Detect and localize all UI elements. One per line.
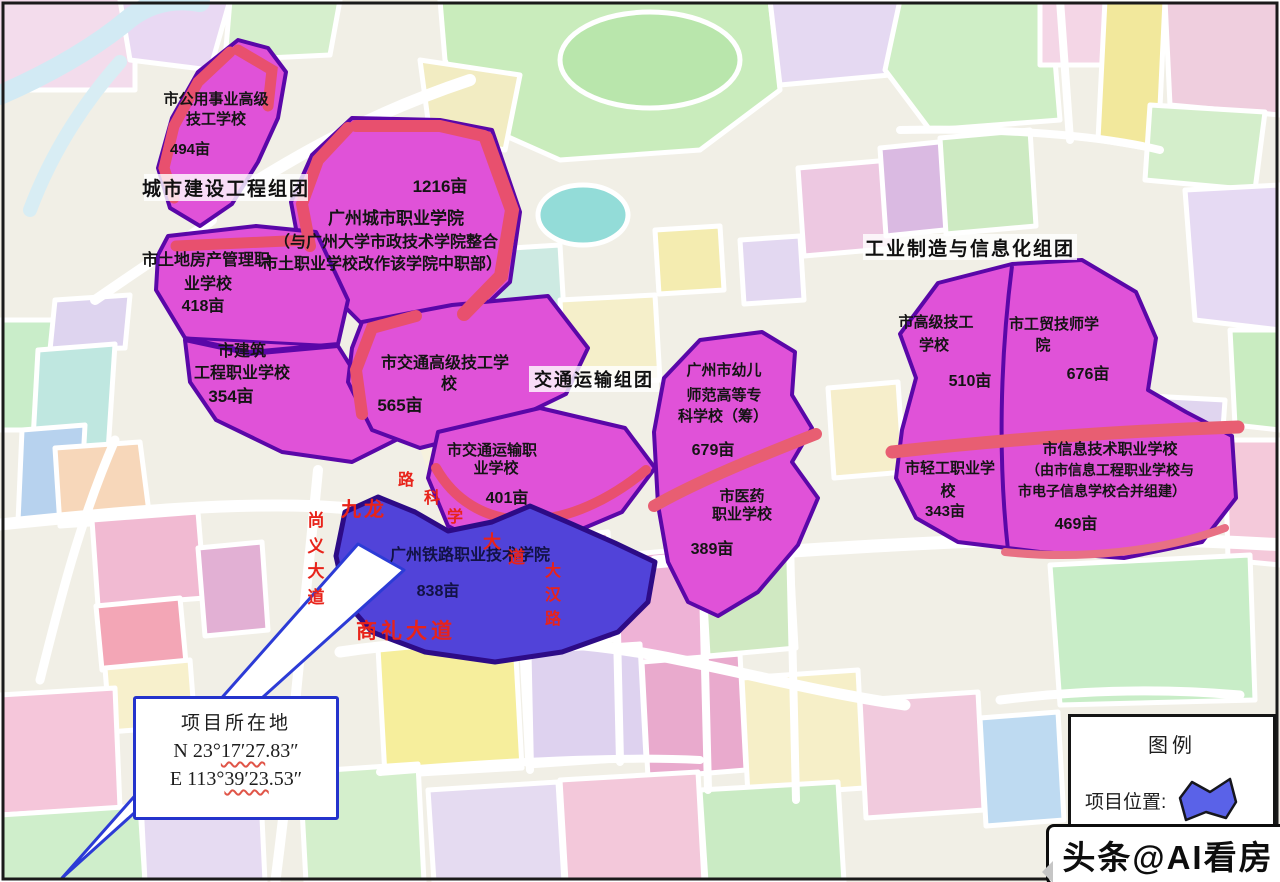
road-label-left-vertical: 尚 义 大 道 [308,508,325,610]
parcel-area: 401亩 [486,490,529,508]
parcel-area: 676亩 [1067,366,1110,384]
parcel-area: 565亩 [377,397,422,416]
parcel-note: 市土职业学校改作该学院中职部） [262,256,502,274]
callout-title: 项目所在地 [136,708,336,735]
road-label-jiulong: 九龙 [341,493,387,522]
parcel-label: 市高级技工 [898,315,973,332]
legend-title: 图例 [1071,729,1273,758]
parcel-label: 市公用事业高级 [163,92,268,109]
parcel-area: 679亩 [692,442,735,460]
parcel-note: 市电子信息学校合并组建） [1018,484,1186,499]
parcel-area: 1216亩 [413,178,468,197]
road-label-right-vertical: 大 汉 路 [545,560,561,632]
parcel-label: 市医药 [719,489,764,506]
parcel-label: 市建筑 [218,343,266,361]
parcel-area-project: 838亩 [417,583,460,601]
parcel-label: 市交通高级技工学 [381,355,509,373]
parcel-label: 师范高等专 [686,388,761,405]
parcel-area: 494亩 [170,142,210,159]
legend-item-label: 项目位置: [1085,787,1166,814]
parcel-label: 广州城市职业学院 [328,210,464,229]
parcel-label: 科学校（筹） [678,409,768,426]
road-label-diagonal-char: 科 [424,484,440,508]
parcel-label: 学校 [919,338,949,355]
parcel-label: 院 [1035,338,1050,355]
parcel-label: 校 [441,376,457,394]
project-location-callout: 项目所在地 N 23°17′27.83″ E 113°39′23.53″ [133,696,339,820]
parcel-label: 业学校 [184,276,232,294]
callout-longitude: E 113°39′23.53″ [136,768,336,791]
watermark-text: 头条@AI看房 [1062,831,1273,879]
parcel-label: 市轻工职业学 [905,461,995,478]
parcel-area: 343亩 [925,504,965,521]
road-label-diagonal-char: 路 [398,466,414,490]
parcel-label: 市交通运输职 [447,443,537,460]
road-label-diagonal-char: 大 [483,528,501,554]
project-area-polygon-icon [1176,776,1240,824]
parcel-label: 市工贸技师学 [1009,317,1099,334]
group-label-transport: 交通运输组团 [529,366,659,392]
group-label-industry-info: 工业制造与信息化组团 [863,234,1077,260]
planning-map: 城市建设工程组团 交通运输组团 工业制造与信息化组团 市公用事业高级 技工学校 … [0,0,1280,882]
parcel-area: 469亩 [1055,516,1098,534]
parcel-label: 校 [940,484,955,501]
parcel-area: 354亩 [208,388,253,407]
parcel-area: 389亩 [691,541,734,559]
parcel-note: （由市信息工程职业学校与 [1026,463,1194,478]
parcel-label: 业学校 [473,461,518,478]
group-label-city-construction: 城市建设工程组团 [144,174,308,201]
parcel-label-project: 广州铁路职业技术学院 [390,547,550,565]
parcel-label: 广州市幼儿 [686,363,761,380]
callout-latitude: N 23°17′27.83″ [136,740,336,763]
parcel-label: 市土地房产管理职 [142,252,270,270]
parcel-label: 职业学校 [712,507,772,524]
parcel-label: 工程职业学校 [194,365,290,383]
road-label-diagonal-char: 道 [508,543,525,568]
road-label-diagonal-char: 学 [447,503,463,527]
parcel-note: （与广州大学市政技术学院整合 [274,234,498,252]
parcel-area: 418亩 [182,298,225,316]
parcel-area: 510亩 [949,373,992,391]
parcel-label: 市信息技术职业学校 [1042,442,1177,459]
road-label-shangli-avenue: 商礼大道 [356,615,456,645]
parcel-label: 技工学校 [186,112,246,129]
watermark-bubble: 头条@AI看房 [1046,824,1280,882]
